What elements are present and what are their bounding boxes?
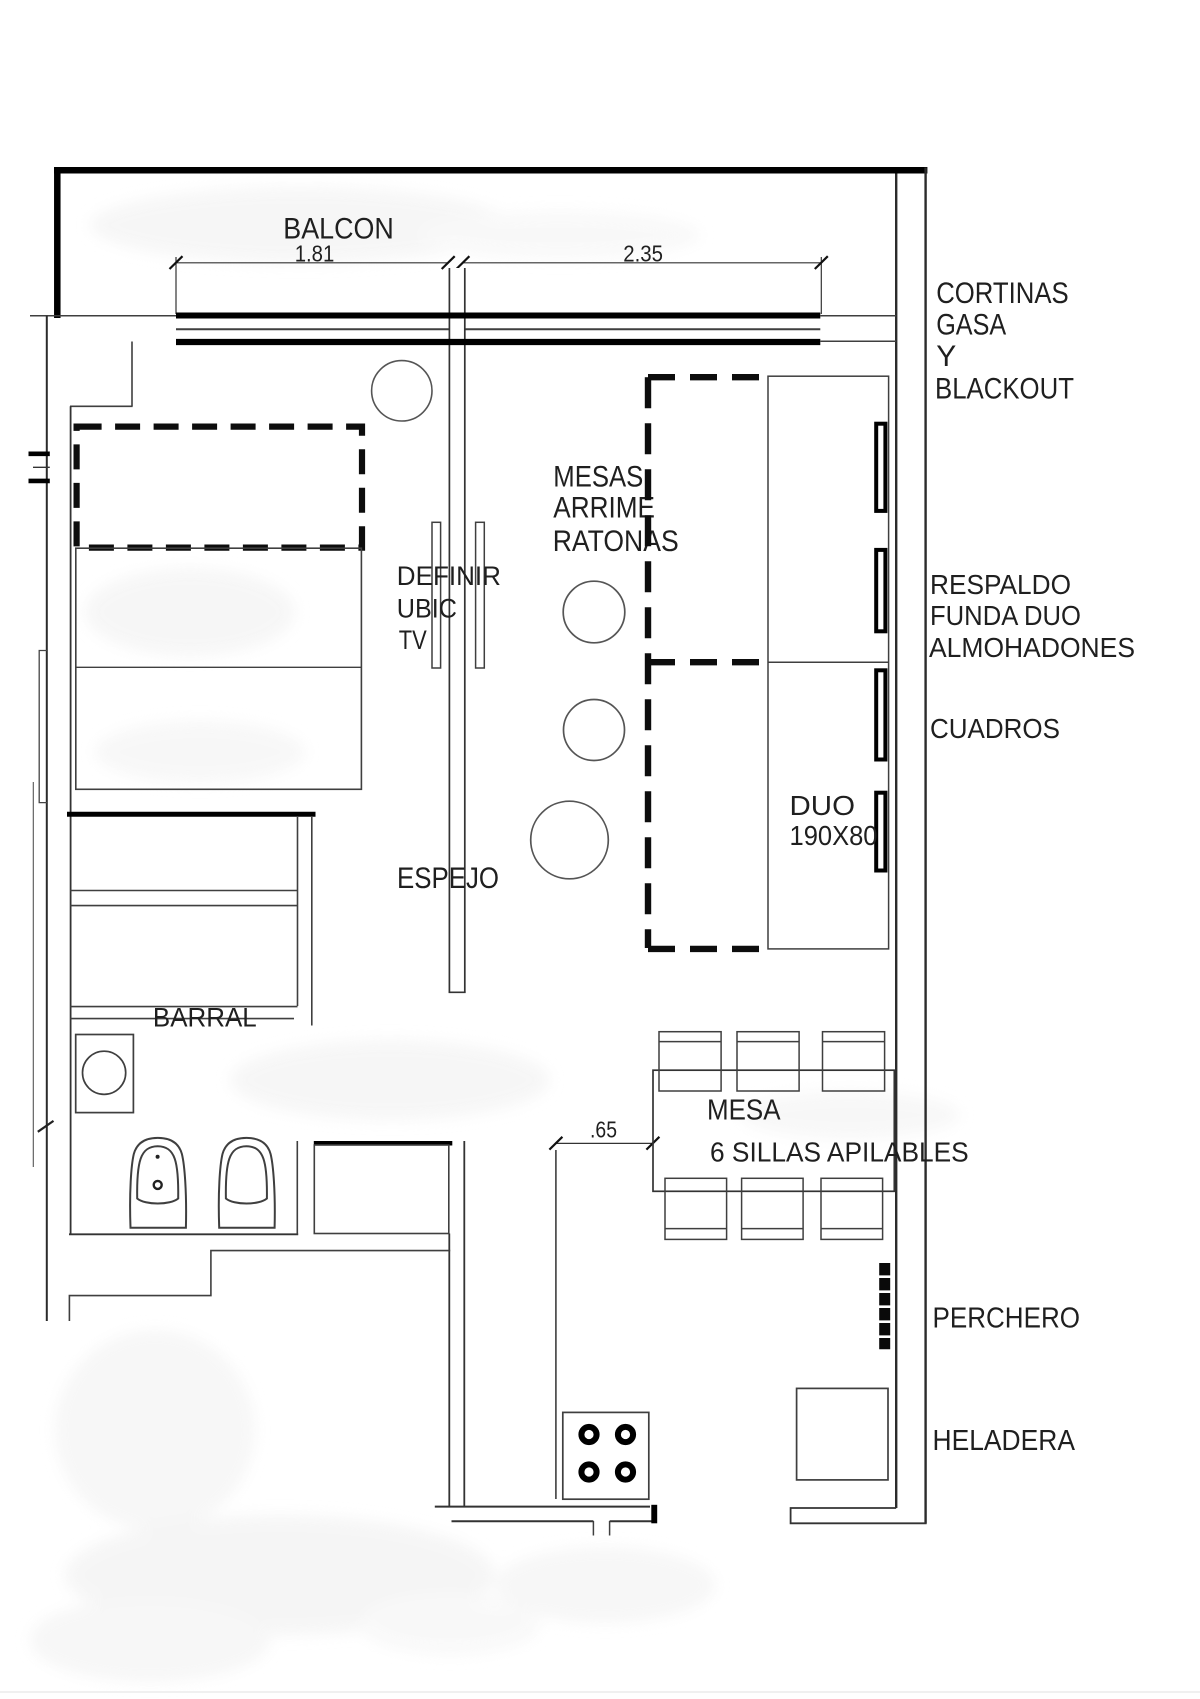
svg-text:MESAS: MESAS bbox=[553, 460, 643, 493]
svg-text:190X80: 190X80 bbox=[790, 820, 878, 851]
svg-text:FUNDA DUO: FUNDA DUO bbox=[930, 600, 1081, 631]
svg-text:ARRIME: ARRIME bbox=[553, 492, 655, 525]
svg-text:TV: TV bbox=[399, 625, 427, 655]
svg-text:RESPALDO: RESPALDO bbox=[930, 569, 1071, 600]
svg-text:.65: .65 bbox=[590, 1117, 617, 1143]
svg-text:HELADERA: HELADERA bbox=[933, 1425, 1076, 1457]
svg-text:UBIC: UBIC bbox=[397, 594, 457, 624]
svg-text:CORTINAS: CORTINAS bbox=[936, 277, 1068, 310]
svg-text:RATONAS: RATONAS bbox=[553, 525, 679, 558]
svg-text:DEFINIR: DEFINIR bbox=[397, 561, 501, 591]
svg-text:BLACKOUT: BLACKOUT bbox=[935, 373, 1074, 406]
svg-text:ESPEJO: ESPEJO bbox=[397, 862, 499, 895]
svg-text:BARRAL: BARRAL bbox=[153, 1003, 257, 1033]
svg-text:Y: Y bbox=[936, 340, 956, 373]
svg-text:PERCHERO: PERCHERO bbox=[933, 1303, 1081, 1335]
svg-text:ALMOHADONES: ALMOHADONES bbox=[929, 632, 1135, 663]
svg-text:6 SILLAS APILABLES: 6 SILLAS APILABLES bbox=[710, 1137, 969, 1168]
svg-text:DUO: DUO bbox=[790, 790, 856, 821]
svg-text:MESA: MESA bbox=[707, 1095, 781, 1127]
svg-text:GASA: GASA bbox=[936, 308, 1006, 341]
svg-text:CUADROS: CUADROS bbox=[930, 713, 1060, 744]
